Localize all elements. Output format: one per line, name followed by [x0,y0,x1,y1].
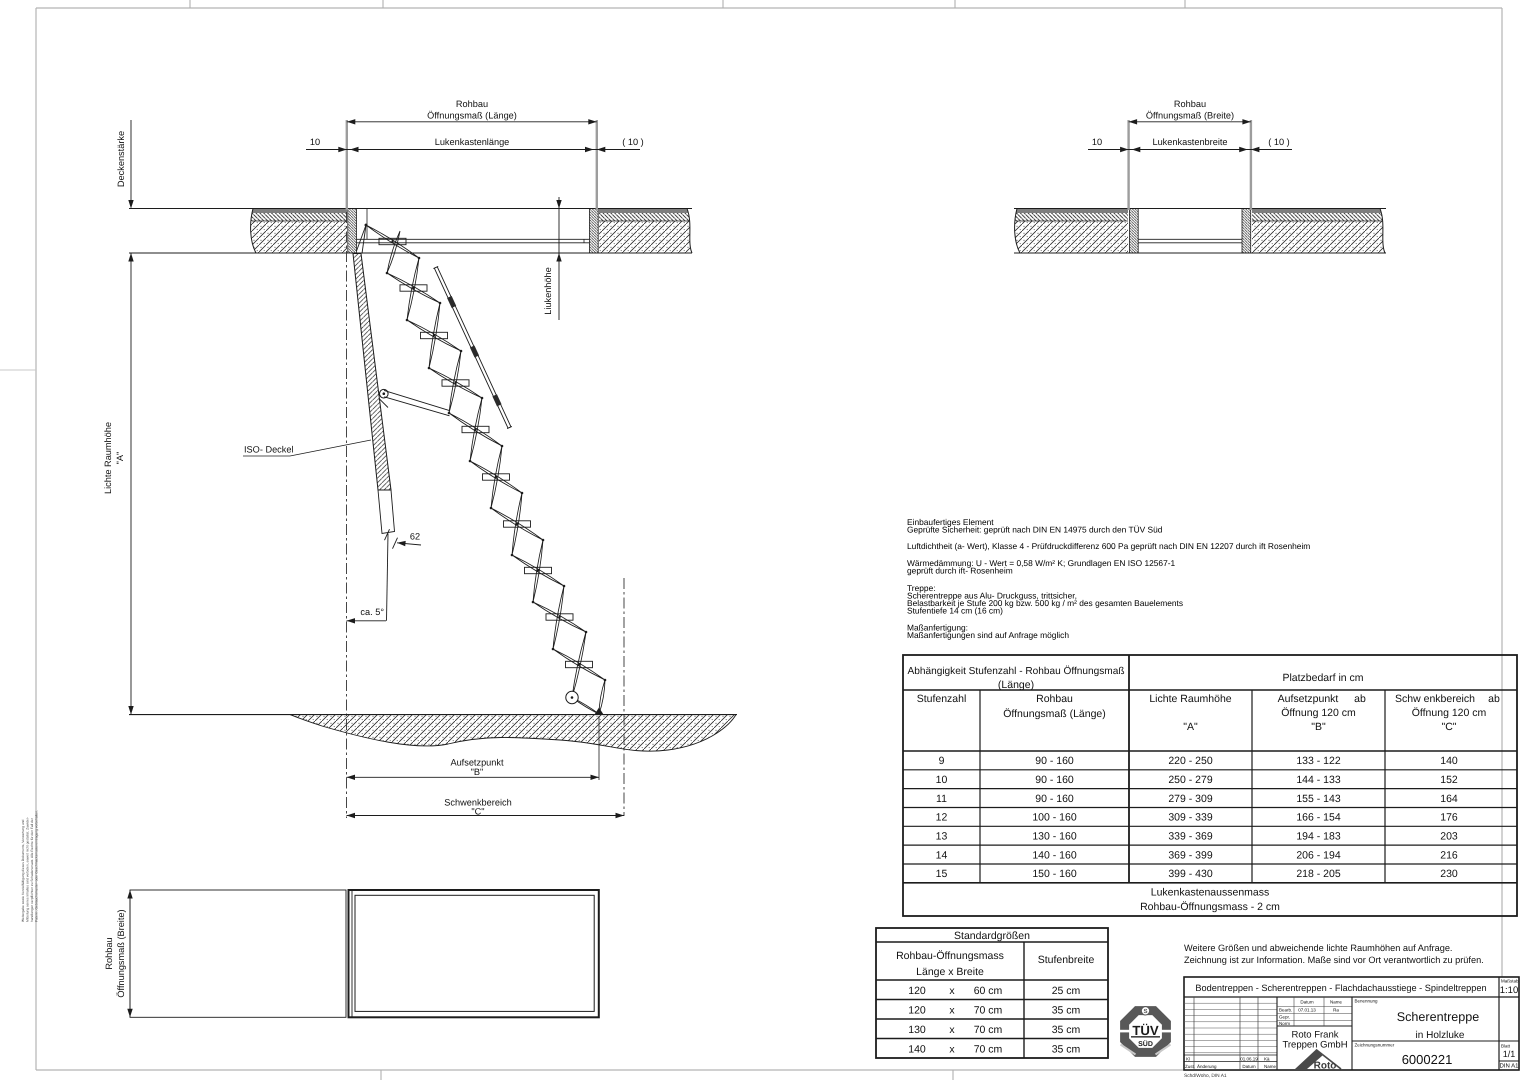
svg-text:Stufenzahl: Stufenzahl [917,693,967,705]
svg-text:handlungen verpflichten zu Sch: handlungen verpflichten zu Schadenersatz… [30,817,34,922]
svg-text:"A": "A" [1183,721,1198,733]
svg-text:14: 14 [936,849,948,861]
svg-text:62: 62 [410,532,420,542]
svg-text:ab: ab [1354,693,1366,705]
svg-text:Lukenkastenaussenmass: Lukenkastenaussenmass [1151,887,1270,899]
svg-text:x: x [949,1044,955,1056]
svg-text:152: 152 [1440,774,1458,786]
svg-text:Mitteilung seines Inhaltes sin: Mitteilung seines Inhaltes sind verboten… [26,817,30,922]
svg-text:Gepr.: Gepr. [1279,1015,1290,1020]
svg-text:Abhängigkeit Stufenzahl - Rohb: Abhängigkeit Stufenzahl - Rohbau Öffnung… [908,665,1125,677]
svg-text:( 10 ): ( 10 ) [622,137,643,147]
svg-text:220 - 250: 220 - 250 [1168,755,1213,767]
svg-text:Zust.: Zust. [1185,1064,1195,1069]
svg-text:Zeichnungsnummer: Zeichnungsnummer [1355,1043,1395,1048]
svg-text:Rohbau: Rohbau [1174,99,1206,109]
svg-text:Luftdichtheit (a- Wert), Klass: Luftdichtheit (a- Wert), Klasse 4 - Prüf… [907,541,1310,551]
svg-text:ab: ab [1488,693,1500,705]
svg-text:Kä: Kä [1264,1057,1270,1062]
svg-text:13: 13 [936,831,948,843]
svg-text:Standardgrößen: Standardgrößen [954,930,1030,942]
svg-text:Ra: Ra [1333,1008,1339,1013]
svg-text:( 10 ): ( 10 ) [1268,137,1289,147]
svg-text:Weitere Größen und abweichende: Weitere Größen und abweichende lichte Ra… [1184,943,1452,953]
svg-text:70 cm: 70 cm [974,1044,1003,1056]
svg-text:9: 9 [939,755,945,767]
svg-text:Name: Name [1330,1000,1343,1005]
svg-text:10: 10 [310,137,320,147]
svg-text:140: 140 [908,1044,926,1056]
svg-text:Scherentreppe: Scherentreppe [1397,1010,1480,1024]
svg-text:SÜD: SÜD [1138,1040,1153,1048]
svg-text:"A": "A" [115,452,125,465]
svg-text:Öffnungsmaß (Breite): Öffnungsmaß (Breite) [116,909,126,997]
svg-text:Lukenkastenlänge: Lukenkastenlänge [435,137,510,147]
svg-text:120: 120 [908,1005,926,1017]
svg-text:Datum: Datum [1242,1064,1256,1069]
svg-text:Deckenstärke: Deckenstärke [116,131,126,187]
svg-text:Aufsetzpunkt: Aufsetzpunkt [1278,693,1339,705]
svg-text:in Holzluke: in Holzluke [1416,1030,1465,1041]
svg-text:130 - 160: 130 - 160 [1032,831,1077,843]
svg-text:Patent-, Gebrauchsmuster- oder: Patent-, Gebrauchsmuster- oder Geschmack… [35,810,39,922]
svg-text:Maßanfertigungen sind auf Anfr: Maßanfertigungen sind auf Anfrage möglic… [907,630,1069,640]
svg-text:15: 15 [936,868,948,880]
svg-text:Bodentreppen - Scherentreppen: Bodentreppen - Scherentreppen - Flachdac… [1195,983,1486,993]
svg-text:Rohbau: Rohbau [104,937,114,969]
svg-text:90 - 160: 90 - 160 [1035,755,1074,767]
svg-text:Öffnungsmaß (Breite): Öffnungsmaß (Breite) [1146,111,1234,121]
svg-text:Länge x Breite: Länge x Breite [916,966,984,978]
svg-text:70 cm: 70 cm [974,1024,1003,1036]
svg-text:geprüft durch ift- Rosenheim: geprüft durch ift- Rosenheim [907,566,1013,576]
svg-text:"C": "C" [1441,721,1456,733]
svg-text:369 - 399: 369 - 399 [1168,849,1213,861]
svg-text:Benennung: Benennung [1355,999,1379,1004]
svg-text:Maßstab: Maßstab [1501,979,1519,984]
svg-text:25 cm: 25 cm [1052,985,1081,997]
svg-text:ca. 5°: ca. 5° [360,607,384,617]
svg-text:x: x [949,985,955,997]
svg-text:Änderung: Änderung [1197,1064,1217,1069]
svg-text:Aufsetzpunkt: Aufsetzpunkt [450,758,504,768]
svg-text:Stufentiefe 14 cm (16 cm): Stufentiefe 14 cm (16 cm) [907,606,1003,616]
svg-text:250 - 279: 250 - 279 [1168,774,1213,786]
svg-text:S: S [1143,1008,1147,1015]
svg-text:130: 130 [908,1024,926,1036]
svg-text:Blatt: Blatt [1501,1044,1511,1049]
svg-text:x: x [949,1024,955,1036]
svg-text:11: 11 [936,793,947,805]
svg-text:Treppen GmbH: Treppen GmbH [1282,1040,1347,1051]
svg-text:DIN A1: DIN A1 [1499,1063,1519,1070]
svg-text:Lichte Raumhöhe: Lichte Raumhöhe [103,422,113,494]
svg-text:Stufenbreite: Stufenbreite [1038,954,1095,966]
svg-text:164: 164 [1440,793,1458,805]
svg-text:(Länge): (Länge) [998,679,1034,691]
svg-text:279 - 309: 279 - 309 [1168,793,1213,805]
svg-text:140 - 160: 140 - 160 [1032,849,1077,861]
svg-text:206 - 194: 206 - 194 [1296,849,1341,861]
svg-text:90 - 160: 90 - 160 [1035,774,1074,786]
svg-text:10: 10 [936,774,948,786]
svg-text:Bearb.: Bearb. [1279,1008,1292,1013]
svg-text:120: 120 [908,985,926,997]
svg-text:Platzbedarf in cm: Platzbedarf in cm [1282,672,1363,684]
svg-text:1/1: 1/1 [1503,1049,1516,1059]
svg-text:35 cm: 35 cm [1052,1044,1081,1056]
svg-text:399 - 430: 399 - 430 [1168,868,1213,880]
svg-text:203: 203 [1440,831,1458,843]
svg-text:"B": "B" [1311,721,1326,733]
svg-text:Rohbau-Öffnungsmass - 2 cm: Rohbau-Öffnungsmass - 2 cm [1140,901,1280,913]
svg-text:Öffnung 120 cm: Öffnung 120 cm [1412,707,1487,719]
svg-text:Schw enkbereich: Schw enkbereich [1395,693,1475,705]
svg-text:90 - 160: 90 - 160 [1035,793,1074,805]
svg-text:35 cm: 35 cm [1052,1024,1081,1036]
svg-text:Öffnungsmaß (Länge): Öffnungsmaß (Länge) [1003,708,1106,720]
svg-text:Rohbau-Öffnungsmass: Rohbau-Öffnungsmass [896,950,1004,962]
svg-text:Schd/Woho, DIN A1: Schd/Woho, DIN A1 [1184,1073,1227,1079]
svg-text:Geprüfte Sicherheit: geprüft n: Geprüfte Sicherheit: geprüft nach DIN EN… [907,525,1163,535]
svg-text:155 - 143: 155 - 143 [1296,793,1341,805]
svg-text:230: 230 [1440,868,1458,880]
svg-text:Öffnungsmaß (Länge): Öffnungsmaß (Länge) [427,111,517,121]
svg-text:6000221: 6000221 [1402,1052,1453,1067]
svg-text:Zeichnung ist zur Information.: Zeichnung ist zur Information. Maße sind… [1184,955,1484,965]
svg-text:01.06.19: 01.06.19 [1240,1057,1258,1062]
svg-text:60 cm: 60 cm [974,985,1003,997]
svg-text:x: x [949,1005,955,1017]
svg-text:133 - 122: 133 - 122 [1296,755,1341,767]
svg-text:176: 176 [1440,812,1458,824]
svg-text:10: 10 [1092,137,1102,147]
svg-text:Liukenhöhe: Liukenhöhe [543,267,553,315]
svg-text:35 cm: 35 cm [1052,1005,1081,1017]
svg-text:144 - 133: 144 - 133 [1296,774,1341,786]
svg-text:1:10: 1:10 [1500,985,1519,996]
svg-text:70 cm: 70 cm [974,1005,1003,1017]
svg-text:309 - 339: 309 - 339 [1168,812,1213,824]
svg-text:150 - 160: 150 - 160 [1032,868,1077,880]
svg-text:Rohbau: Rohbau [456,99,488,109]
svg-text:Rohbau: Rohbau [1036,693,1073,705]
svg-text:218 - 205: 218 - 205 [1296,868,1341,880]
svg-text:"C": "C" [471,807,484,817]
svg-text:"B": "B" [471,767,484,777]
svg-text:166 - 154: 166 - 154 [1296,812,1341,824]
svg-text:Norm: Norm [1279,1021,1290,1026]
svg-text:Kl: Kl [1186,1057,1190,1062]
svg-text:07.01.13: 07.01.13 [1298,1008,1316,1013]
svg-text:Lichte Raumhöhe: Lichte Raumhöhe [1149,693,1231,705]
svg-text:Datum: Datum [1300,1000,1314,1005]
svg-text:TÜV: TÜV [1132,1023,1159,1038]
svg-text:140: 140 [1440,755,1458,767]
svg-text:216: 216 [1440,849,1458,861]
svg-text:Lukenkastenbreite: Lukenkastenbreite [1152,137,1227,147]
svg-text:100 - 160: 100 - 160 [1032,812,1077,824]
svg-text:339 - 369: 339 - 369 [1168,831,1213,843]
svg-text:Öffnung 120 cm: Öffnung 120 cm [1281,707,1356,719]
svg-text:Weitergabe sowie Vervielfältig: Weitergabe sowie Vervielfältigung dieses… [21,819,25,922]
svg-text:Roto: Roto [1314,1061,1337,1072]
svg-text:12: 12 [936,812,948,824]
svg-text:ISO- Deckel: ISO- Deckel [244,445,294,455]
svg-text:194 - 183: 194 - 183 [1296,831,1341,843]
svg-text:Name: Name [1264,1064,1277,1069]
